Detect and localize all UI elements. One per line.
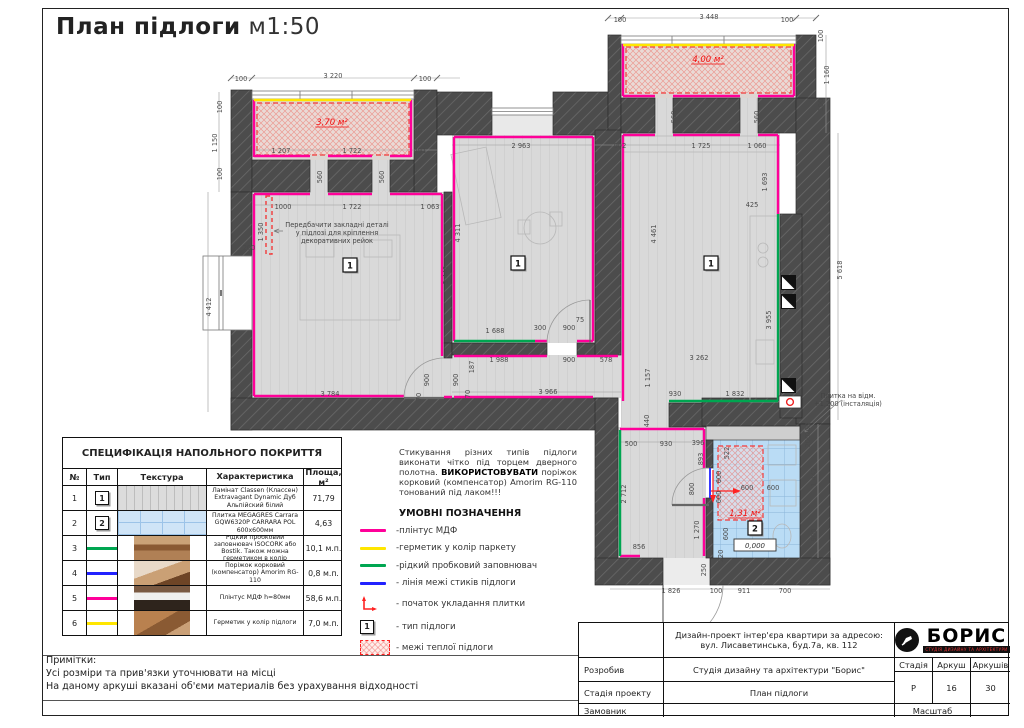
spec-row-type [87, 536, 118, 560]
dimension-label: 3 262 [690, 354, 709, 362]
spec-row-type: 2 [87, 511, 118, 535]
dimension-label: 1 442 [810, 468, 818, 487]
dimension-label: 1 826 [662, 587, 681, 595]
dimension-label: 560 [670, 111, 678, 124]
note-line-1: Усі розміри та прив'язки уточнювати на м… [46, 669, 576, 679]
tb-sheets-header: Аркушів [970, 657, 1010, 671]
spec-row-texture [118, 561, 207, 585]
spec-row-number: 5 [63, 586, 87, 610]
dimension-label: 930 [660, 440, 673, 448]
spec-table-row: 5Плінтус МДФ h=80мм58,6 м.п. [63, 586, 341, 611]
tb-sheet-header: Аркуш [932, 657, 970, 671]
spec-header-row: №ТипТекстураХарактеристикаПлоща, м² [63, 469, 341, 486]
dimension-label: 100 [235, 75, 248, 83]
dimension-label: 700 [779, 587, 792, 595]
tb-scale-label: Масштаб [894, 703, 970, 717]
legend: УМОВНІ ПОЗНАЧЕННЯ -плінтус МДФ-герметик … [360, 508, 560, 662]
dimension-label: 100 [817, 30, 825, 43]
dimension-label: 1 063 [421, 203, 440, 211]
area-label: 1,31 м² [729, 509, 761, 519]
dimension-label: 100 [817, 99, 825, 112]
dimension-label: 3 220 [324, 72, 343, 80]
spec-row-texture [118, 486, 207, 510]
texture-swatch [118, 486, 206, 510]
area-label: 3,70 м² [316, 118, 348, 128]
dimension-label: 3 448 [700, 13, 719, 21]
dimension-label: 900 [563, 356, 576, 364]
floor-type-icon: 1 [360, 620, 390, 634]
dimension-label: 600 [715, 471, 723, 484]
spec-table-title: СПЕЦИФІКАЦІЯ НАПОЛЬНОГО ПОКРИТТЯ [63, 438, 341, 469]
dimension-label: 856 [633, 543, 646, 551]
dimension-label: 560 [378, 171, 386, 184]
dimension-label: 522 [723, 447, 731, 460]
dimension-label: 578 [600, 356, 613, 364]
dimension-label: 200 [804, 435, 812, 448]
dimension-label: 902 [614, 142, 627, 150]
dimension-label: 900 [563, 324, 576, 332]
tb-address-1: Дизайн-проект інтер'єра квартири за адре… [675, 630, 883, 640]
floor-type-marker-label: 1 [708, 260, 714, 270]
spec-row-description: Ламінат Classen (Классен) Extravagant Dy… [207, 486, 304, 510]
tb-row2-label: Стадія проекту [579, 681, 663, 703]
dimension-label: 425 [746, 201, 759, 209]
dimension-label: 440 [643, 415, 651, 428]
dimension-label: 911 [738, 587, 751, 595]
dimension-label: 2 712 [620, 485, 628, 504]
dimension-label: 1 157 [644, 369, 652, 388]
spec-row-area: 4,63 [304, 511, 343, 535]
spec-row-number: 1 [63, 486, 87, 510]
dimension-label: 200 [804, 423, 812, 436]
tb-address-2: вул. Лисаветинська, буд.7а, кв. 112 [700, 640, 857, 650]
dimension-label: 250 [700, 564, 708, 577]
spec-row-area: 10,1 м.п. [304, 536, 343, 560]
dimension-label: 396 [692, 439, 705, 447]
dimension-label: 491 [414, 147, 427, 155]
tb-row3-value [663, 703, 894, 717]
legend-title: УМОВНІ ПОЗНАЧЕННЯ [360, 508, 560, 519]
dimension-label: 70 [464, 390, 472, 398]
tb-row1-label: Розробив [579, 657, 663, 681]
dimension-label: 220 [717, 550, 725, 563]
spec-row-texture [118, 611, 207, 635]
dimension-label: 4 311 [454, 224, 462, 243]
legend-item: - лінія межі стиків підлоги [360, 578, 560, 589]
tb-sheet-value: 16 [932, 671, 970, 703]
spec-row-type: 1 [87, 486, 118, 510]
texture-swatch [134, 611, 190, 635]
warning-text-bold: ВИКОРИСТОВУВАТИ [441, 467, 538, 477]
spec-header-cell: Текстура [118, 469, 207, 485]
dimension-label: 4 461 [650, 225, 658, 244]
spec-header-cell: № [63, 469, 87, 485]
boris-logo-icon [895, 628, 919, 652]
dimension-label: 1 725 [692, 142, 711, 150]
dimension-label: 600 [767, 484, 780, 492]
dimension-label: 560 [753, 111, 761, 124]
boris-logo-subtitle: СТУДІЯ ДИЗАЙНУ ТА АРХІТЕКТУРИ [923, 646, 1009, 653]
texture-swatch [134, 561, 190, 585]
spec-row-number: 6 [63, 611, 87, 635]
dimension-label: 4 412 [205, 298, 213, 317]
spec-row-number: 3 [63, 536, 87, 560]
legend-line-swatch [360, 529, 390, 532]
floor-type-marker-label: 1 [515, 260, 521, 270]
spec-row-area: 71,79 [304, 486, 343, 510]
dimension-label: 100 [781, 16, 794, 24]
texture-swatch [118, 511, 206, 535]
legend-item: - початок укладання плитки [360, 595, 560, 613]
legend-items: -плінтус МДФ-герметик у колір паркету-рі… [360, 525, 560, 655]
tb-sheets-value: 30 [970, 671, 1010, 703]
dimension-label: 1 207 [272, 147, 291, 155]
legend-item: - межі теплої підлоги [360, 640, 560, 655]
spec-row-description: Плінтус МДФ h=80мм [207, 586, 304, 610]
dimension-label: 560 [316, 171, 324, 184]
dimension-label: 3 966 [539, 388, 558, 396]
dimension-label: 70 [415, 393, 423, 401]
dimension-label: 100 [216, 168, 224, 181]
legend-item-label: -плінтус МДФ [396, 526, 457, 536]
texture-swatch [134, 536, 190, 560]
dimension-label: 1 688 [486, 327, 505, 335]
dimension-label: 100 [710, 587, 723, 595]
dimension-label: 3 955 [765, 311, 773, 330]
spec-row-texture [118, 511, 207, 535]
dimension-label: 100 [216, 101, 224, 114]
dimension-label: 300 [534, 324, 547, 332]
tb-row1-value: Студія дизайну та архітектури "Борис" [663, 657, 894, 681]
tb-row3-label: Замовник [579, 703, 663, 717]
spec-row-area: 58,6 м.п. [304, 586, 343, 610]
dimension-label: 1000 [275, 203, 292, 211]
notes-title: Примітки: [46, 656, 576, 666]
legend-item: 1- тип підлоги [360, 620, 560, 634]
tb-stage-header: Стадія [894, 657, 932, 671]
dimension-label: 900 [423, 374, 431, 387]
tile-elevation-note: Плитка на відм.+1,200 (інсталяція) [814, 392, 882, 408]
spec-table-row: 3Рідкий пробковий заповнювач ISOCORK або… [63, 536, 341, 561]
dimension-label: 900 [452, 374, 460, 387]
title-block: Дизайн-проект інтер'єра квартири за адре… [578, 622, 1009, 716]
dimension-label: 3 442 [442, 266, 450, 285]
dimension-label: 1 722 [343, 147, 362, 155]
dimension-label: 1 988 [490, 356, 509, 364]
dimension-label: 930 [669, 390, 682, 398]
spec-row-type [87, 586, 118, 610]
dimension-label: 2 963 [512, 142, 531, 150]
tiling-start-icon [360, 595, 390, 613]
spec-row-description: Поріжок корковий (компенсатор) Amorim RG… [207, 561, 304, 585]
dimension-label: 3 784 [321, 390, 340, 398]
elevation-label: 0,000 [745, 542, 766, 550]
dimension-label: 800 [688, 483, 696, 496]
spec-table-row: 11Ламінат Classen (Классен) Extravagant … [63, 486, 341, 511]
spec-table-body: №ТипТекстураХарактеристикаПлоща, м²11Лам… [63, 469, 341, 635]
spec-row-number: 2 [63, 511, 87, 535]
dimension-label: 900 [810, 529, 818, 542]
spec-row-number: 4 [63, 561, 87, 585]
spec-row-description: Герметик у колір підлоги [207, 611, 304, 635]
spec-header-cell: Характеристика [207, 469, 304, 485]
dimension-label: 1 832 [726, 390, 745, 398]
floor-type-marker-label: 2 [752, 525, 758, 535]
dimension-label: 100 [419, 75, 432, 83]
dimension-label: 1 350 [257, 223, 265, 242]
legend-item-label: - тип підлоги [396, 622, 456, 632]
tb-stage-value: Р [894, 671, 932, 703]
spec-table-row: 6Герметик у колір підлоги7,0 м.п. [63, 611, 341, 635]
dimension-label: 500 [625, 440, 638, 448]
tb-logo-cell: БОРИС СТУДІЯ ДИЗАЙНУ ТА АРХІТЕКТУРИ [894, 623, 1010, 657]
legend-item-label: - межі теплої підлоги [396, 643, 493, 653]
boris-logo-name: БОРИС [923, 627, 1009, 645]
spec-table: СПЕЦИФІКАЦІЯ НАПОЛЬНОГО ПОКРИТТЯ №ТипТек… [62, 437, 342, 636]
spec-header-cell: Площа, м² [304, 469, 343, 485]
note-line-2: На даному аркуші вказані об'єми материал… [46, 682, 576, 692]
legend-line-swatch [360, 564, 390, 567]
dimension-label: 600 [715, 491, 723, 504]
spec-header-cell: Тип [87, 469, 118, 485]
spec-row-type [87, 611, 118, 635]
dimension-label: 1 060 [748, 142, 767, 150]
dimension-label: 1 160 [823, 66, 831, 85]
spec-row-texture [118, 586, 207, 610]
floor-type-marker-label: 1 [347, 262, 353, 272]
tb-empty-cell [579, 623, 663, 657]
spec-row-description: Плитка MEGAGRES Carrara GQW6320P CARRARA… [207, 511, 304, 535]
legend-item-label: - лінія межі стиків підлоги [396, 578, 516, 588]
spec-table-row: 4Поріжок корковий (компенсатор) Amorim R… [63, 561, 341, 586]
spec-row-texture [118, 536, 207, 560]
warm-floor-icon [360, 640, 390, 655]
dimension-label: 1 150 [211, 134, 219, 153]
dimension-label: 100 [614, 16, 627, 24]
notes-rule-mid [43, 700, 578, 701]
dimension-label: 1 270 [693, 521, 701, 540]
tb-scale-value [970, 703, 1010, 717]
dimension-label: 200 [243, 244, 256, 252]
legend-line-swatch [360, 582, 390, 585]
spec-table-row: 22Плитка MEGAGRES Carrara GQW6320P CARRA… [63, 511, 341, 536]
legend-item-label: -рідкий пробковий заповнювач [396, 561, 537, 571]
legend-line-swatch [360, 547, 390, 550]
tb-row2-value: План підлоги [663, 681, 894, 703]
texture-swatch [134, 586, 190, 610]
joint-warning-note: Стикування різних типів підлоги виконати… [399, 447, 577, 498]
legend-item: -герметик у колір паркету [360, 543, 560, 554]
spec-row-type [87, 561, 118, 585]
spec-row-description: Рідкий пробковий заповнювач ISOCORK або … [207, 536, 304, 560]
dimension-label: 600 [741, 484, 754, 492]
dimension-label: 5 618 [836, 261, 844, 280]
dimension-label: 1 722 [343, 203, 362, 211]
dimension-label: 187 [468, 361, 476, 374]
legend-item-label: - початок укладання плитки [396, 599, 525, 609]
spec-row-area: 0,8 м.п. [304, 561, 343, 585]
spec-row-area: 7,0 м.п. [304, 611, 343, 635]
notes-rule-top [43, 655, 578, 656]
tb-project-cell: Дизайн-проект інтер'єра квартири за адре… [663, 623, 894, 657]
dimension-label: 1 693 [761, 173, 769, 192]
legend-item-label: -герметик у колір паркету [396, 543, 516, 553]
notes-block: Примітки: Усі розміри та прив'язки уточн… [46, 656, 576, 694]
dimension-label: 600 [722, 528, 730, 541]
legend-item: -рідкий пробковий заповнювач [360, 560, 560, 571]
dimension-label: 75 [576, 316, 584, 324]
dimension-label: 893 [697, 453, 705, 466]
legend-item: -плінтус МДФ [360, 525, 560, 536]
area-label: 4,00 м² [692, 55, 724, 65]
